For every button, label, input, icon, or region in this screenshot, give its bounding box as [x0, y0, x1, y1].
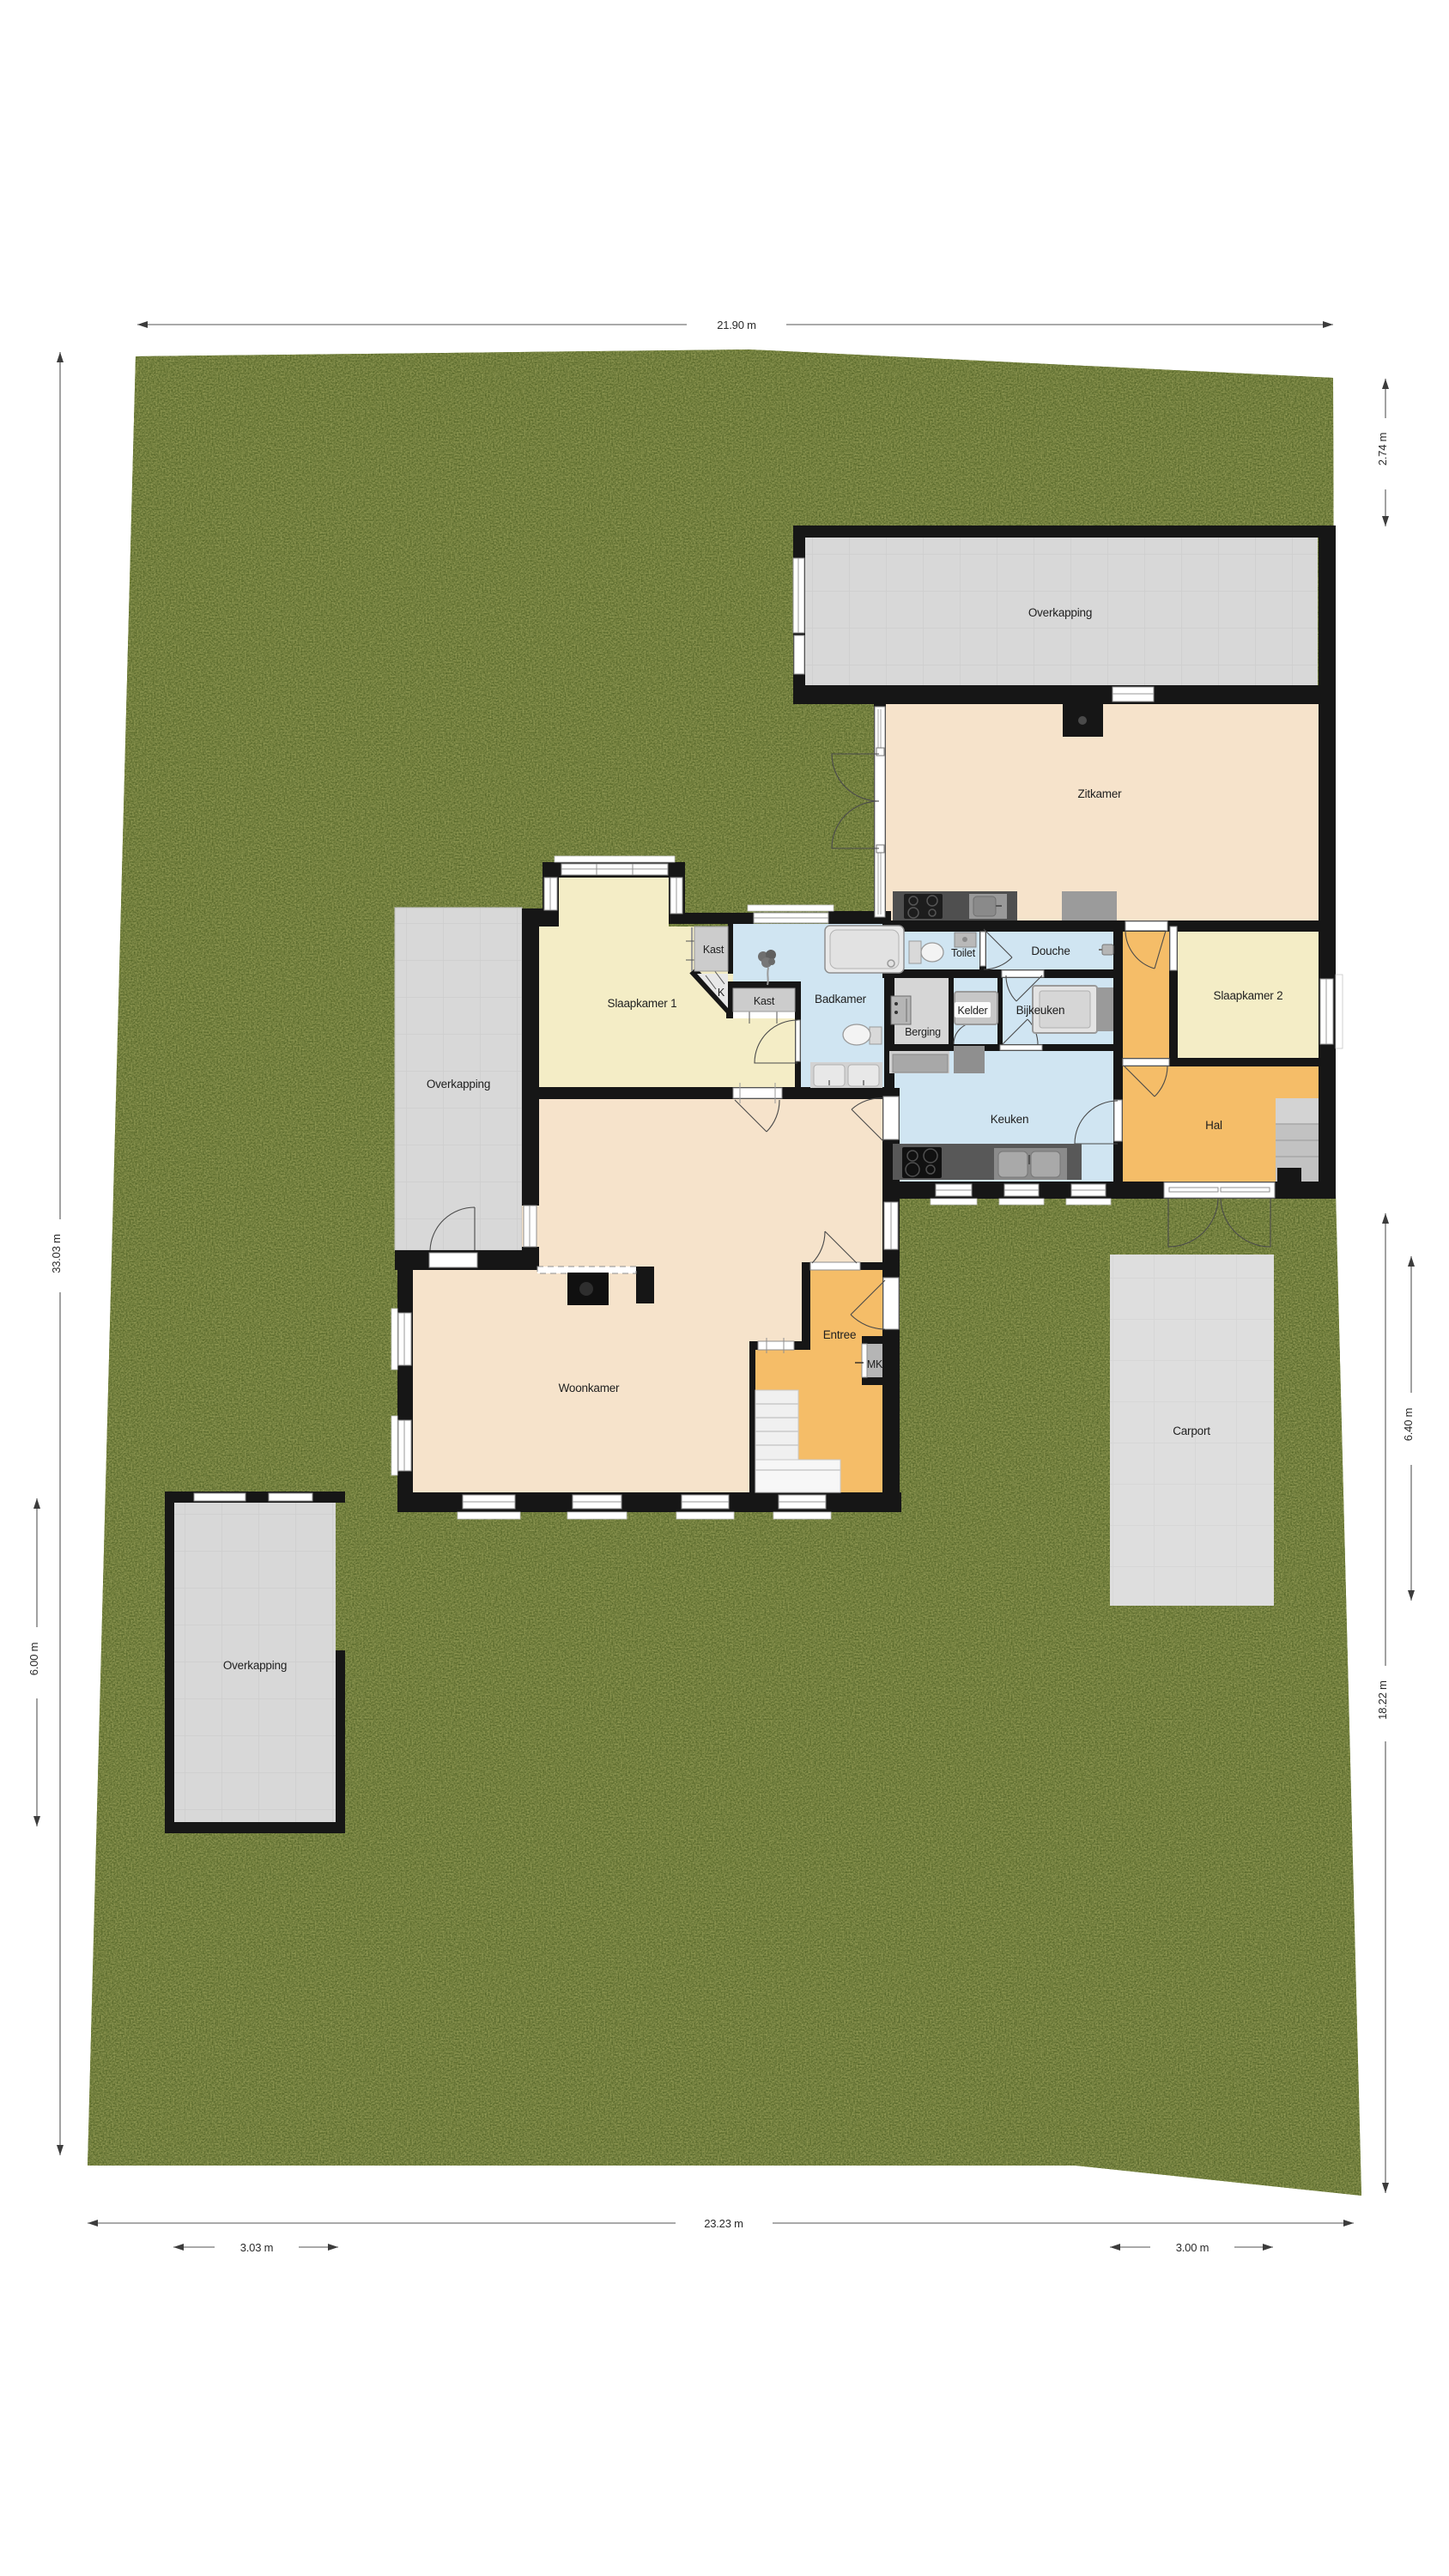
svg-text:Overkapping: Overkapping	[223, 1659, 287, 1672]
svg-text:Badkamer: Badkamer	[815, 993, 867, 1005]
svg-text:K: K	[718, 987, 725, 999]
svg-text:Overkapping: Overkapping	[427, 1078, 490, 1091]
svg-text:6.40 m: 6.40 m	[1402, 1408, 1415, 1442]
svg-text:Slaapkamer 2: Slaapkamer 2	[1214, 989, 1283, 1002]
svg-text:3.03 m: 3.03 m	[240, 2241, 274, 2254]
svg-text:23.23 m: 23.23 m	[704, 2217, 743, 2230]
svg-text:Kast: Kast	[754, 995, 775, 1007]
svg-text:Toilet: Toilet	[951, 947, 976, 959]
svg-text:Slaapkamer 1: Slaapkamer 1	[608, 997, 677, 1010]
svg-text:MK: MK	[867, 1358, 883, 1370]
svg-text:Hal: Hal	[1205, 1119, 1222, 1132]
svg-text:Zitkamer: Zitkamer	[1078, 787, 1123, 800]
svg-text:Berging: Berging	[905, 1026, 941, 1038]
svg-text:2.74 m: 2.74 m	[1376, 433, 1389, 466]
svg-text:Entree: Entree	[823, 1328, 857, 1341]
svg-text:18.22 m: 18.22 m	[1376, 1680, 1389, 1720]
svg-text:3.00 m: 3.00 m	[1176, 2241, 1210, 2254]
svg-text:Kast: Kast	[703, 944, 724, 956]
svg-text:6.00 m: 6.00 m	[27, 1643, 40, 1676]
svg-text:Kelder: Kelder	[958, 1005, 988, 1017]
svg-text:Carport: Carport	[1173, 1425, 1210, 1437]
svg-text:Bijkeuken: Bijkeuken	[1016, 1004, 1065, 1017]
svg-text:Woonkamer: Woonkamer	[559, 1382, 620, 1394]
svg-text:Douche: Douche	[1031, 945, 1070, 957]
svg-text:Keuken: Keuken	[991, 1113, 1029, 1126]
svg-text:Overkapping: Overkapping	[1028, 606, 1092, 619]
svg-text:33.03 m: 33.03 m	[50, 1234, 63, 1273]
svg-text:21.90 m: 21.90 m	[717, 319, 756, 331]
